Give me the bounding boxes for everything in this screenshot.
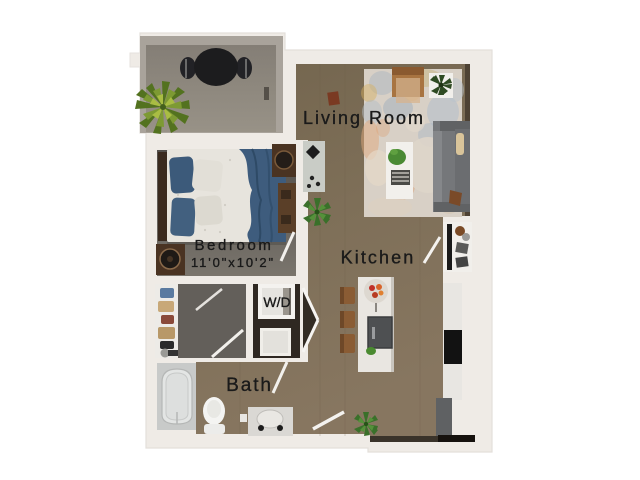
svg-text:Bedroom: Bedroom	[194, 237, 273, 254]
svg-text:Living Room: Living Room	[303, 108, 425, 128]
svg-text:11'0"x10'2": 11'0"x10'2"	[191, 255, 275, 270]
svg-text:W/D: W/D	[263, 294, 290, 310]
svg-text:Bath: Bath	[226, 375, 273, 396]
svg-text:Kitchen: Kitchen	[341, 248, 416, 268]
